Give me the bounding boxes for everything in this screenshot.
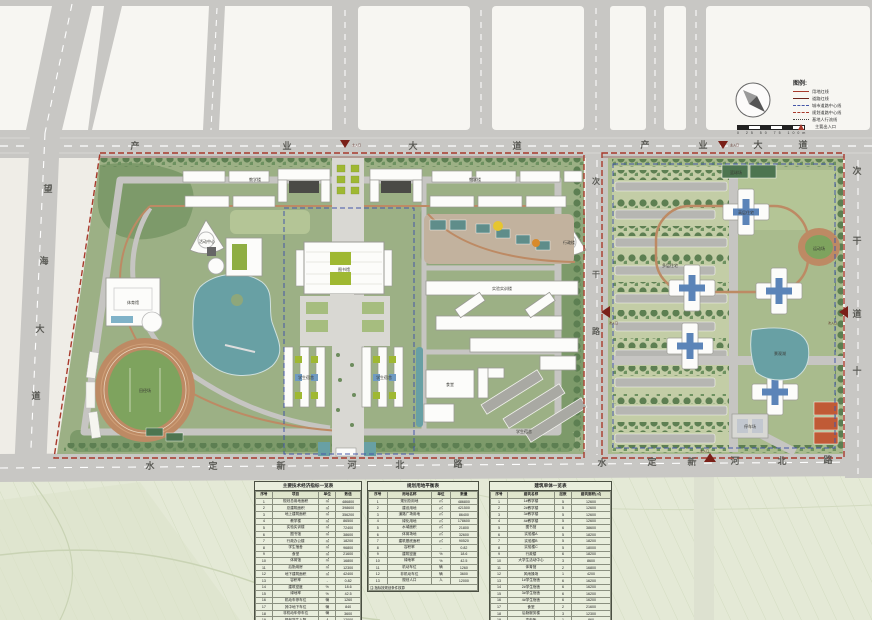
svg-text:学生宿舍: 学生宿舍 [298, 374, 314, 380]
table-cell: 后勤用房 [272, 564, 319, 571]
legend-label: 主要出入口 [815, 124, 836, 130]
table-cell: 42400 [336, 571, 361, 578]
table-cell: 3 [554, 610, 571, 617]
legend-items: 用地红线道路红线城市道路中心线规划道路中心线基地人行流线主要出入口 [793, 88, 869, 130]
svg-text:产: 产 [130, 140, 139, 151]
svg-text:道: 道 [798, 139, 807, 150]
table-row: 33#教学楼512600 [491, 511, 611, 518]
table-cell: 16200 [571, 584, 610, 591]
table-row: 14建筑密度%18.6 [256, 584, 361, 591]
svg-text:望: 望 [43, 183, 52, 194]
table-row: 8容积率-0.82 [369, 544, 478, 551]
table-header-cell: 数量 [450, 492, 477, 499]
table-cell: 21800 [450, 525, 477, 532]
table-cell: % [319, 584, 336, 591]
table-cell: 5 [554, 531, 571, 538]
table-cell: 42.5 [336, 591, 361, 598]
svg-text:高层住宅: 高层住宅 [738, 209, 754, 215]
table-cell: ㎡ [432, 498, 451, 505]
table-cell: 18200 [336, 538, 361, 545]
legend-item: 城市道路中心线 [793, 102, 869, 109]
table-row: 12地下建筑面积㎡42400 [256, 571, 361, 578]
table-cell: 14 [491, 584, 508, 591]
table-row: 6图书馆㎡38600 [256, 531, 361, 538]
table-cell: 建筑基底面积 [387, 538, 432, 545]
table-cell: 18 [256, 610, 273, 617]
field-road-stub [694, 476, 714, 620]
table-cell: 4 [491, 518, 508, 525]
table-header-cell: 单位 [432, 492, 451, 499]
table-cell: 13 [256, 577, 273, 584]
table-cell: 356200 [336, 511, 361, 518]
table-cell: 4#教学楼 [508, 518, 555, 525]
table-cell: 2#教学楼 [508, 505, 555, 512]
table-cell: 6 [554, 551, 571, 558]
table-cell: - [319, 577, 336, 584]
table-row: 1规划总用地㎡486800 [369, 498, 478, 505]
table-row: 17食堂221600 [491, 604, 611, 611]
svg-text:次入口: 次入口 [828, 320, 837, 325]
table-cell: 1 [491, 498, 508, 505]
table-cell: 2#学生宿舍 [508, 584, 555, 591]
table-cell: 18200 [571, 538, 610, 545]
table-cell: 18.6 [336, 584, 361, 591]
table-row: 13规划人口人12000 [369, 577, 478, 584]
legend: 0 25 50 75 100m 图例: 用地红线道路红线城市道路中心线规划道路中… [731, 78, 869, 140]
table-cell: 10 [491, 558, 508, 565]
table-cell: 16 [491, 597, 508, 604]
table-row: 18非机动车停车位辆3600 [256, 610, 361, 617]
svg-text:定: 定 [646, 456, 657, 467]
table-row: 5水域面积㎡21800 [369, 525, 478, 532]
table-row: 9行政楼618200 [491, 551, 611, 558]
table-cell: 1 [369, 498, 388, 505]
table-cell: 实验楼A [508, 531, 555, 538]
table-cell: 6 [554, 525, 571, 532]
table-cell: 18200 [571, 551, 610, 558]
svg-text:路: 路 [592, 326, 601, 336]
legend-symbol-dot [793, 119, 809, 120]
table-cell: 规划总用地 [387, 498, 432, 505]
table-cell: 16800 [336, 558, 361, 565]
table-economic-indicators: 主要技术经济指标一览表序号项目单位数值1规划总用地面积㎡4868002总建筑面积… [254, 481, 362, 620]
table-cell: 21600 [571, 604, 610, 611]
table-cell: 42.5 [450, 558, 477, 565]
table-cell: 容积率 [387, 544, 432, 551]
table-cell: 实验楼B [508, 538, 555, 545]
canal [416, 347, 423, 427]
table-header-cell: 序号 [369, 492, 388, 499]
svg-text:主入口: 主入口 [352, 142, 361, 147]
legend-symbol-solid [793, 98, 809, 99]
svg-text:体育馆: 体育馆 [127, 299, 139, 305]
table-cell: 1#学生宿舍 [508, 577, 555, 584]
svg-text:教学楼: 教学楼 [249, 176, 261, 182]
svg-text:新: 新 [276, 460, 285, 471]
south-gatehouse [336, 448, 356, 456]
legend-symbol-tri [798, 124, 804, 130]
table-row: 6体育场地㎡32600 [369, 531, 478, 538]
table-cell: 7 [491, 538, 508, 545]
table-cell: ㎡ [432, 505, 451, 512]
table-cell: 机动车停车位 [272, 597, 319, 604]
table-cell: 1260 [336, 597, 361, 604]
table-row: 8学生宿舍㎡96800 [256, 544, 361, 551]
yellow-sculpture [493, 221, 503, 231]
svg-text:道: 道 [31, 390, 40, 401]
table-cell: 食堂 [508, 604, 555, 611]
table-cell: 道路广场用地 [387, 511, 432, 518]
table-cell: 容积率 [272, 577, 319, 584]
legend-symbol-dash [793, 112, 809, 113]
table-cell: 建设用地 [387, 505, 432, 512]
table-row: 164#学生宿舍616200 [491, 597, 611, 604]
table-cell: 3#教学楼 [508, 511, 555, 518]
table-header-cell: 用地名称 [387, 492, 432, 499]
table-cell: 体育馆 [508, 564, 555, 571]
table-cell: 86500 [336, 518, 361, 525]
table-cell: 图书馆 [272, 531, 319, 538]
svg-text:学生宿舍: 学生宿舍 [376, 374, 392, 380]
svg-text:路: 路 [453, 458, 463, 469]
svg-text:多层住宅: 多层住宅 [662, 262, 678, 268]
table-cell: 6 [369, 531, 388, 538]
table-cell: 辆 [432, 571, 451, 578]
table-cell: 绿地率 [272, 591, 319, 598]
svg-text:主入口: 主入口 [730, 142, 739, 147]
svg-text:学生宿舍: 学生宿舍 [516, 428, 532, 434]
table-building-list: 建筑单体一览表序号建筑名称层数建筑面积(㎡)11#教学楼51260022#教学楼… [489, 481, 612, 620]
svg-text:次入口: 次入口 [609, 320, 618, 325]
table-cell: 5 [369, 525, 388, 532]
table-cell: 5 [256, 525, 273, 532]
table-cell: 486800 [450, 498, 477, 505]
table-cell: 辆 [319, 597, 336, 604]
table-cell: ㎡ [319, 518, 336, 525]
table-cell: 3 [554, 558, 571, 565]
table-cell: 8 [369, 544, 388, 551]
table-cell: ㎡ [319, 531, 336, 538]
gym-building [106, 278, 162, 332]
table-land-balance: 规划用地平衡表序号用地名称单位数量1规划总用地㎡4868002建设用地㎡4215… [367, 481, 479, 592]
svg-text:行政楼: 行政楼 [563, 239, 575, 245]
table-header-row: 序号建筑名称层数建筑面积(㎡) [491, 492, 611, 499]
table-cell: 8 [256, 544, 273, 551]
legend-item: 用地红线 [793, 88, 869, 95]
table-cell: 5 [554, 518, 571, 525]
table-cell: 机动车位 [387, 564, 432, 571]
table-cell: 人 [432, 577, 451, 584]
svg-text:道: 道 [852, 308, 861, 319]
table-cell: 实验实训楼 [272, 525, 319, 532]
svg-text:干: 干 [852, 236, 861, 246]
table-cell: 2 [554, 564, 571, 571]
svg-text:停车场: 停车场 [744, 423, 756, 429]
table-cell: 178600 [450, 518, 477, 525]
table-cell: 32600 [450, 531, 477, 538]
table-cell: 13 [369, 577, 388, 584]
table-cell: 5 [554, 498, 571, 505]
table-cell: 13 [491, 577, 508, 584]
table-cell: 实验楼C [508, 544, 555, 551]
table-row: 18后勤服务楼312300 [491, 610, 611, 617]
table-cell: 非机动车停车位 [272, 610, 319, 617]
svg-text:水: 水 [145, 460, 155, 471]
table-cell: 12600 [571, 511, 610, 518]
table-cell: % [432, 558, 451, 565]
legend-item: 道路红线 [793, 95, 869, 102]
table-cell: 5 [554, 544, 571, 551]
table-row: 153#学生宿舍616200 [491, 591, 611, 598]
table-cell: ㎡ [432, 538, 451, 545]
svg-text:北: 北 [777, 455, 786, 466]
table-row: 12风雨操场14200 [491, 571, 611, 578]
table-cell: 食堂 [272, 551, 319, 558]
lake [193, 274, 280, 375]
table-cell: 体育场地 [387, 531, 432, 538]
table-header-row: 序号项目单位数值 [256, 492, 361, 499]
svg-text:田径场: 田径场 [139, 387, 151, 393]
table-cell: 3 [491, 511, 508, 518]
tennis-courts [814, 402, 838, 444]
table-cell: 2 [554, 604, 571, 611]
table-cell: 3 [369, 511, 388, 518]
table-cell: ㎡ [432, 518, 451, 525]
table-cell: 9 [369, 551, 388, 558]
legend-box: 图例: 用地红线道路红线城市道路中心线规划道路中心线基地人行流线主要出入口 [793, 78, 869, 130]
table-cell: 1 [554, 571, 571, 578]
table-cell: 1#教学楼 [508, 498, 555, 505]
table-row: 5图书馆638600 [491, 525, 611, 532]
table-row: 44#教学楼512600 [491, 518, 611, 525]
legend-title: 图例: [793, 78, 869, 87]
svg-text:干: 干 [592, 270, 600, 279]
table-cell: 14 [256, 584, 273, 591]
table-cell: 18000 [571, 544, 610, 551]
table-row: 17其中地下车位辆840 [256, 604, 361, 611]
table-cell: 5 [554, 511, 571, 518]
table-cell: 12300 [336, 564, 361, 571]
table-title: 建筑单体一览表 [490, 482, 611, 491]
table-row: 10体育馆㎡16800 [256, 558, 361, 565]
table-cell: 11 [369, 564, 388, 571]
table-cell: ㎡ [319, 498, 336, 505]
table-row: 2建设用地㎡421500 [369, 505, 478, 512]
table-cell: 6 [554, 591, 571, 598]
table-title: 主要技术经济指标一览表 [255, 482, 361, 491]
table-row: 4绿化用地㎡178600 [369, 518, 478, 525]
table-header-cell: 层数 [554, 492, 571, 499]
table-row: 4教学楼㎡86500 [256, 518, 361, 525]
table-cell: 12 [491, 571, 508, 578]
table-cell: 10 [369, 558, 388, 565]
master-plan-sheet: 产 业 大 道 产 业 大 道 望 海 大 道 水 定 新 河 北 路 水 定 … [0, 0, 872, 620]
table-title: 规划用地平衡表 [368, 482, 478, 491]
table-row: 16机动车停车位辆1260 [256, 597, 361, 604]
table-cell: 16200 [571, 577, 610, 584]
table-cell: ㎡ [319, 558, 336, 565]
table-cell: 12600 [571, 498, 610, 505]
table-cell: 4#学生宿舍 [508, 597, 555, 604]
table-row: 12非机动车位辆3600 [369, 571, 478, 578]
table-cell: 16 [256, 597, 273, 604]
table-cell: 辆 [432, 564, 451, 571]
table-cell: 7 [369, 538, 388, 545]
svg-text:食堂: 食堂 [446, 381, 454, 387]
table-cell: 5 [554, 505, 571, 512]
table-cell: 12600 [571, 518, 610, 525]
legend-label: 规划道路中心线 [812, 110, 841, 116]
sports-courts-zone [424, 214, 575, 264]
table-cell: 18 [491, 610, 508, 617]
table-header-cell: 项目 [272, 492, 319, 499]
orange-sculpture [532, 239, 540, 247]
svg-text:大: 大 [408, 140, 417, 151]
table-cell: 11 [256, 564, 273, 571]
table-cell: 地下建筑面积 [272, 571, 319, 578]
table-cell: 建筑密度 [387, 551, 432, 558]
table-header-cell: 建筑面积(㎡) [571, 492, 610, 499]
table-cell: 90520 [450, 538, 477, 545]
table-cell: 3600 [336, 610, 361, 617]
table-row: 11体育馆216800 [491, 564, 611, 571]
svg-text:实验实训楼: 实验实训楼 [492, 285, 512, 291]
east-campus [608, 158, 843, 454]
table-cell: 绿地率 [387, 558, 432, 565]
table-cell: ㎡ [319, 544, 336, 551]
table-row: 10大学生活动中心38600 [491, 558, 611, 565]
table-cell: 3 [256, 511, 273, 518]
table-cell: 其中地下车位 [272, 604, 319, 611]
table-cell: 0.82 [450, 544, 477, 551]
legend-symbol-dash [793, 105, 809, 106]
table-row: 13容积率-0.82 [256, 577, 361, 584]
table-cell: 6 [554, 597, 571, 604]
svg-text:海: 海 [39, 255, 48, 266]
table-header-cell: 数值 [336, 492, 361, 499]
table-row: 6实验楼A518200 [491, 531, 611, 538]
table-cell: 10 [256, 558, 273, 565]
table-cell: 18.6 [450, 551, 477, 558]
table-cell: 4 [256, 518, 273, 525]
table-cell: 3600 [450, 571, 477, 578]
table-cell: 840 [336, 604, 361, 611]
table-cell: 行政办公楼 [272, 538, 319, 545]
table-cell: ㎡ [432, 531, 451, 538]
table-cell: 12600 [571, 505, 610, 512]
table-cell: 96800 [336, 544, 361, 551]
svg-text:北: 北 [395, 459, 404, 470]
table-cell: ㎡ [319, 505, 336, 512]
table-cell: 72400 [336, 525, 361, 532]
table-cell: 8 [491, 544, 508, 551]
table-cell: 6 [256, 531, 273, 538]
table-cell: ㎡ [319, 511, 336, 518]
table-cell: 5 [491, 525, 508, 532]
legend-label: 用地红线 [812, 89, 829, 95]
table-cell: 6 [554, 577, 571, 584]
svg-text:河: 河 [730, 455, 739, 466]
table-row: 7建筑基底面积㎡90520 [369, 538, 478, 545]
table-row: 9食堂㎡21600 [256, 551, 361, 558]
svg-text:次: 次 [592, 176, 600, 186]
legend-item: 主要出入口 [793, 123, 869, 130]
table-cell: 图书馆 [508, 525, 555, 532]
svg-text:大: 大 [753, 139, 762, 150]
table-cell: 水域面积 [387, 525, 432, 532]
table-cell: 教学楼 [272, 518, 319, 525]
table-cell: 16200 [571, 591, 610, 598]
table-cell: ㎡ [432, 525, 451, 532]
table-cell: 规划人口 [387, 577, 432, 584]
table-cell: ㎡ [319, 538, 336, 545]
table-cell: 5 [554, 538, 571, 545]
table-row: 11#教学楼512600 [491, 498, 611, 505]
table-cell: 1 [256, 498, 273, 505]
central-plaza [300, 296, 390, 346]
table-row: 11后勤用房㎡12300 [256, 564, 361, 571]
table-header-cell: 序号 [491, 492, 508, 499]
svg-text:定: 定 [207, 460, 218, 471]
table-cell: 18200 [571, 531, 610, 538]
table-row: 11机动车位辆1260 [369, 564, 478, 571]
table-cell: 学生宿舍 [272, 544, 319, 551]
svg-text:业: 业 [282, 140, 291, 151]
table-cell: - [432, 544, 451, 551]
table-row: 5实验实训楼㎡72400 [256, 525, 361, 532]
north-compass-icon [731, 78, 775, 122]
svg-text:道: 道 [512, 140, 521, 151]
table-cell: 辆 [319, 610, 336, 617]
table-cell: 体育馆 [272, 558, 319, 565]
svg-text:次: 次 [852, 165, 861, 176]
svg-text:大: 大 [35, 323, 44, 334]
table-cell: 86400 [450, 511, 477, 518]
legend-symbol-solid [793, 91, 809, 92]
legend-label: 道路红线 [812, 96, 829, 102]
table-cell: % [319, 591, 336, 598]
svg-text:主入口: 主入口 [700, 448, 709, 453]
table-header-row: 序号用地名称单位数量 [369, 492, 478, 499]
table-cell: 4200 [571, 571, 610, 578]
table-cell: 绿化用地 [387, 518, 432, 525]
table-cell: 2 [369, 505, 388, 512]
table-cell: 398600 [336, 505, 361, 512]
table-cell: 规划总用地面积 [272, 498, 319, 505]
table-footer-row: 注:指标按规划条件核算 [369, 584, 478, 591]
svg-text:河: 河 [347, 459, 356, 470]
table-cell: 辆 [319, 604, 336, 611]
svg-text:活动中心: 活动中心 [199, 238, 215, 244]
table-cell: ㎡ [319, 551, 336, 558]
table-cell: 16200 [571, 597, 610, 604]
table-cell: 6 [491, 531, 508, 538]
table-header-cell: 序号 [256, 492, 273, 499]
svg-text:十: 十 [852, 365, 861, 376]
table-cell: 非机动车位 [387, 571, 432, 578]
svg-text:新: 新 [687, 456, 696, 467]
table-row: 7实验楼B518200 [491, 538, 611, 545]
table-cell: 7 [256, 538, 273, 545]
table-cell: 15 [256, 591, 273, 598]
table-row: 3道路广场用地㎡86400 [369, 511, 478, 518]
table-row: 9建筑密度%18.6 [369, 551, 478, 558]
table-row: 10绿地率%42.5 [369, 558, 478, 565]
svg-text:业: 业 [698, 139, 707, 150]
table-cell: 大学生活动中心 [508, 558, 555, 565]
table-cell: 38600 [336, 531, 361, 538]
table-cell: 2 [256, 505, 273, 512]
